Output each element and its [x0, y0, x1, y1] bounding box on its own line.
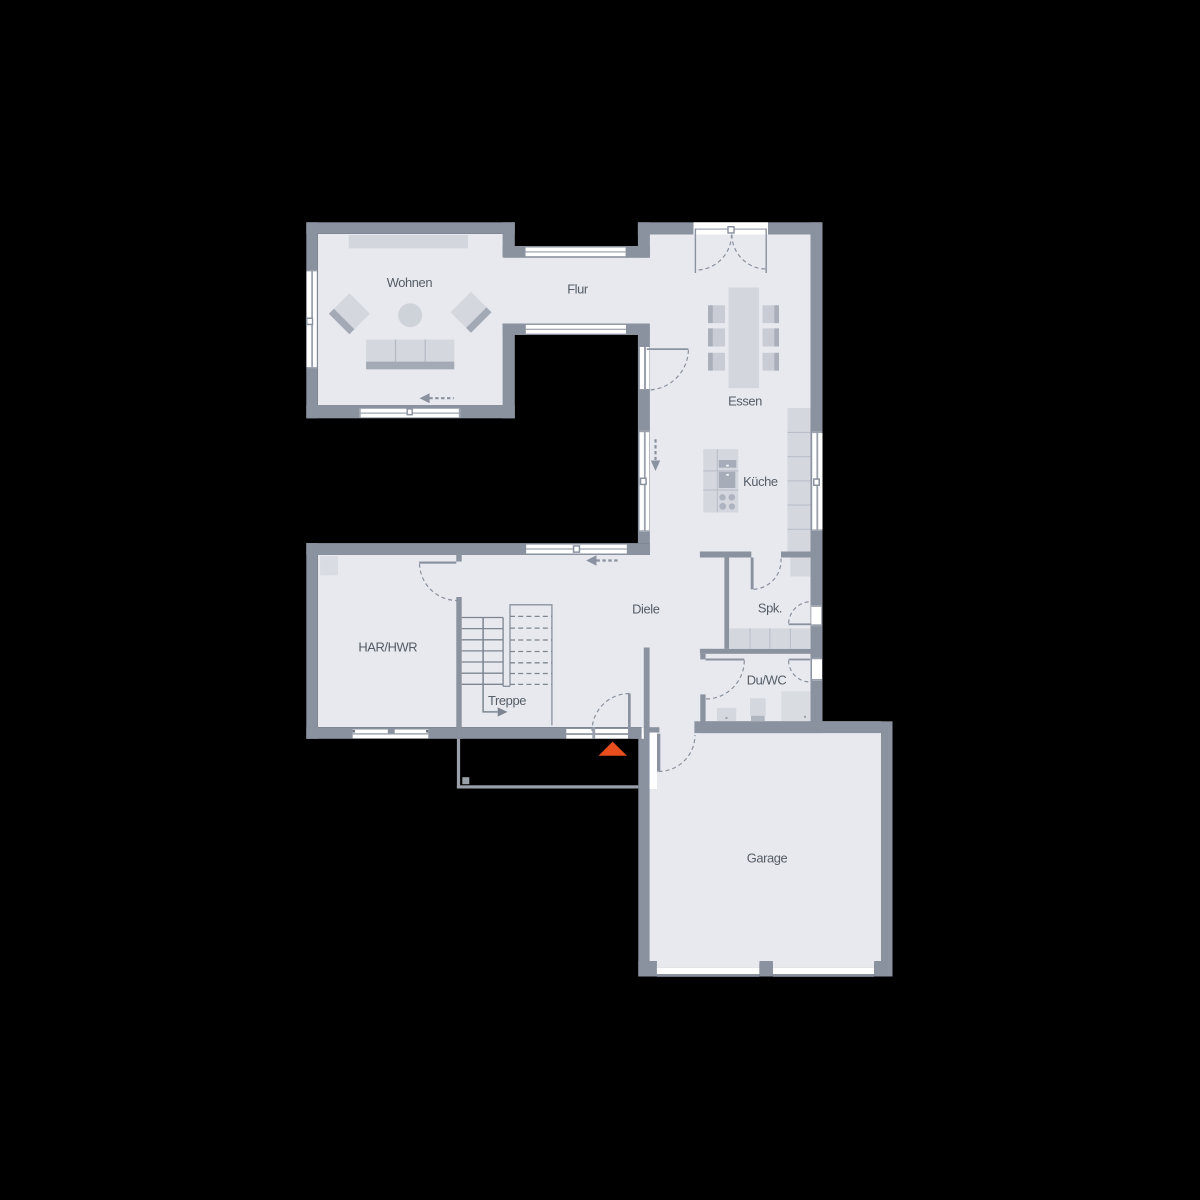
svg-text:Flur: Flur — [567, 282, 589, 297]
svg-text:Spk.: Spk. — [758, 601, 782, 616]
svg-text:Essen: Essen — [728, 394, 762, 409]
svg-text:Garage: Garage — [747, 851, 788, 866]
svg-text:Treppe: Treppe — [488, 693, 526, 708]
svg-text:HAR/HWR: HAR/HWR — [358, 640, 417, 655]
svg-text:Küche: Küche — [743, 474, 778, 489]
svg-text:Diele: Diele — [632, 601, 660, 616]
svg-text:Wohnen: Wohnen — [387, 275, 433, 290]
svg-text:Du/WC: Du/WC — [747, 672, 787, 687]
